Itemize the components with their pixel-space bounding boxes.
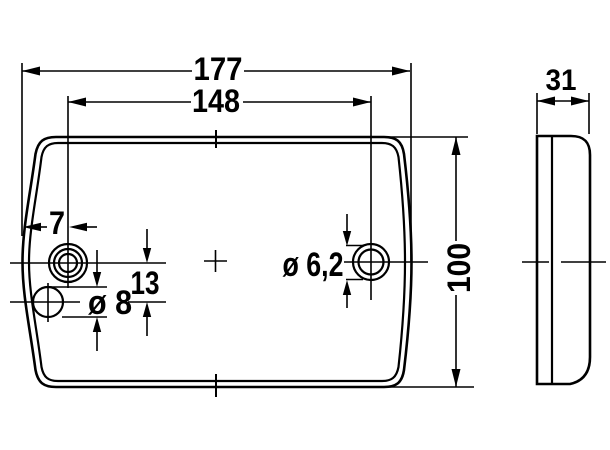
dim-overall-width-label: 177 xyxy=(194,51,243,87)
mount-hole-top-left xyxy=(10,96,166,288)
technical-drawing: 177 148 31 100 7 xyxy=(0,0,610,450)
dim-overall-height-label: 100 xyxy=(441,243,477,293)
dim-large-hole-diameter-label: ø 8 xyxy=(88,284,132,322)
dim-hole-vertical-offset-label: 13 xyxy=(131,265,160,301)
side-view xyxy=(522,136,606,384)
dim-hole-vertical-offset: 13 xyxy=(131,229,160,336)
dim-large-hole-diameter: ø 8 xyxy=(48,250,132,351)
center-mark xyxy=(204,250,227,272)
technical-drawing-sheet: 177 148 31 100 7 xyxy=(0,0,610,450)
front-view xyxy=(10,96,428,397)
dim-hole-spacing-label: 148 xyxy=(192,83,240,119)
dim-depth: 31 xyxy=(537,64,589,134)
mount-hole-right xyxy=(344,96,428,300)
dim-small-hole-diameter: ø 6,2 xyxy=(283,214,364,308)
dim-hole-edge-offset-label: 7 xyxy=(49,205,65,241)
dim-hole-spacing: 148 xyxy=(68,83,371,119)
dim-small-hole-diameter-label: ø 6,2 xyxy=(283,246,344,284)
dim-depth-label: 31 xyxy=(546,64,577,97)
side-view-outline xyxy=(537,136,590,384)
